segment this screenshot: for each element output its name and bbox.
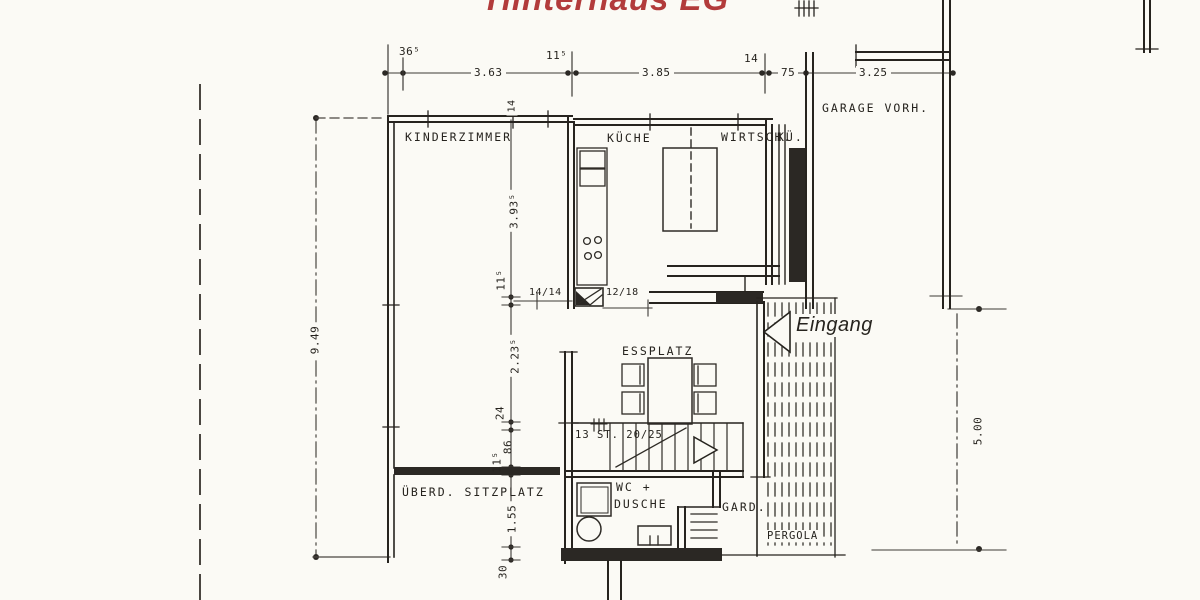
dim-left-949: 9.49 [309, 323, 322, 358]
column-note-1218: 12/18 [606, 287, 639, 298]
walls [383, 0, 1158, 600]
page-title: Hinterhaus EG [487, 0, 729, 18]
dim-chain-2235: 2.23⁵ [509, 335, 522, 377]
room-label-garage: GARAGE VORH. [822, 101, 929, 115]
dim-chain-115a: 11⁵ [495, 269, 508, 290]
dim-chain-115b: 11⁵ [491, 451, 504, 472]
dim-top-385: 3.85 [639, 66, 674, 79]
dim-chain-30: 30 [497, 565, 510, 579]
kitchen-fixtures [575, 128, 717, 306]
wall-thickness-note: 14 [507, 96, 518, 115]
column-note-1414: 14/14 [529, 287, 562, 298]
floorplan-page: Hinterhaus EG KINDERZIMMER KÜCHE WIRTSCH… [0, 0, 1200, 600]
dim-chain-155: 1.55 [506, 502, 519, 537]
right-dimension-chain [872, 296, 1006, 552]
dim-top-325: 3.25 [856, 66, 891, 79]
dim-top-363: 3.63 [471, 66, 506, 79]
dim-right-500: 5.00 [972, 417, 985, 446]
floorplan-line-art [0, 0, 1200, 600]
room-label-pergola: PERGOLA [764, 530, 821, 542]
staircase [591, 419, 727, 470]
room-label-garderobe: GARD. [722, 500, 767, 514]
room-label-sitzplatz: ÜBERD. SITZPLATZ [402, 485, 545, 499]
dim-top-75: 75 [778, 66, 798, 79]
entrance-label: Eingang [793, 314, 876, 337]
boundary-lines [200, 85, 390, 600]
dim-top-365: 36⁵ [399, 45, 420, 58]
room-label-wc: WC + [616, 480, 652, 494]
room-label-kinderzimmer: KINDERZIMMER [405, 130, 512, 144]
room-label-wirtschaftskueche-2: KÜ. [777, 130, 804, 144]
dim-chain-3935: 3.93⁵ [508, 190, 521, 232]
dim-chain-24: 24 [494, 406, 507, 420]
room-label-kueche: KÜCHE [607, 131, 652, 145]
dim-top-14: 14 [744, 52, 758, 65]
room-label-dusche: DUSCHE [614, 497, 668, 511]
room-label-essplatz: ESSPLATZ [622, 344, 693, 358]
stairs-note: 13 ST. 20/25 [575, 429, 663, 441]
dim-top-115: 11⁵ [546, 49, 567, 62]
dining-furniture [622, 358, 716, 424]
